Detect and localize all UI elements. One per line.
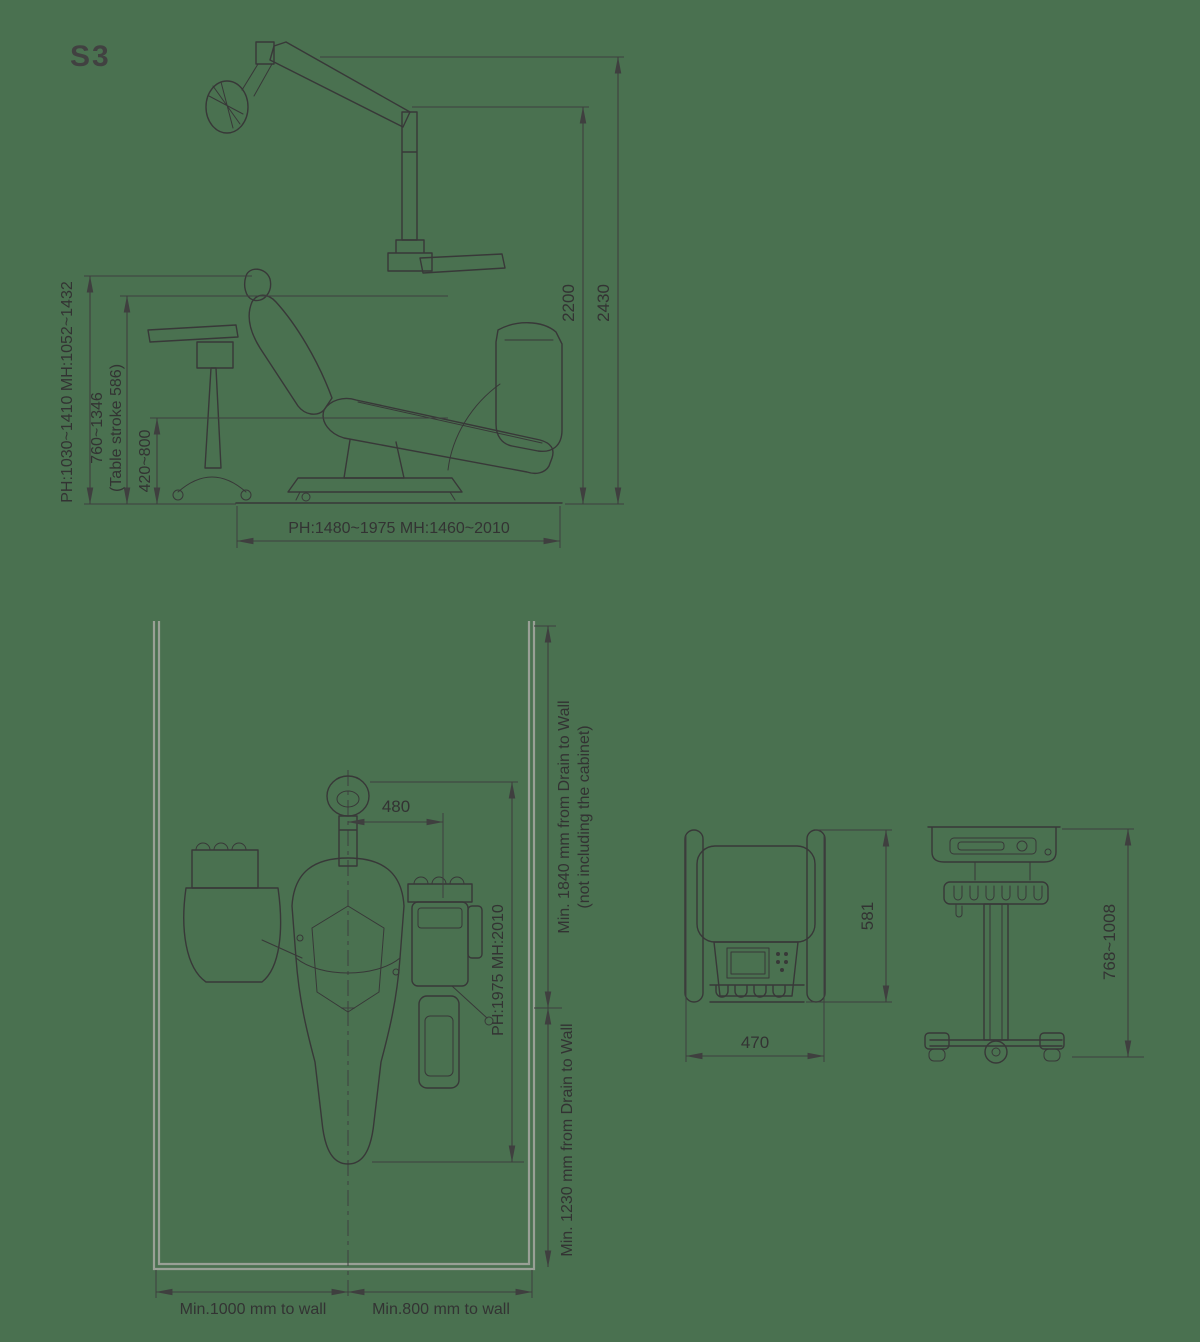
dim-label-height-inner: 2200 <box>559 284 578 322</box>
front-view-dimensions: 581 470 <box>686 830 892 1062</box>
instrument-holder-bar <box>944 882 1048 904</box>
assistant-tray-scallops <box>196 843 246 850</box>
assistant-body <box>184 888 281 982</box>
delivery-unit-plan <box>408 877 493 1088</box>
dim-label-wall-left: Min.1000 mm to wall <box>180 1301 327 1318</box>
dim-label-headrest-offset: 480 <box>382 797 410 816</box>
cart-view: 768~1008 <box>925 827 1144 1063</box>
chair-base <box>288 478 462 492</box>
delivery-body <box>412 902 468 986</box>
seat-legrest-side <box>323 398 553 473</box>
plan-view-dimensions: 480 PH:1975 MH:2010 Min. 1840 mm from Dr… <box>156 626 593 1318</box>
dim-label-cart-height: 768~1008 <box>1100 904 1119 980</box>
base-skid <box>296 492 455 500</box>
light-link <box>242 64 272 96</box>
foot-control <box>302 493 310 501</box>
control-screen <box>731 952 765 974</box>
instrument-slots <box>954 886 1042 900</box>
assistant-tray <box>192 850 258 888</box>
legrest-edge <box>358 402 542 443</box>
chair-side-profile <box>245 269 553 501</box>
delivery-arm <box>452 986 487 1018</box>
cart-caster-left-wheel <box>929 1049 945 1061</box>
extension-lines <box>686 830 892 1062</box>
dim-label-wall-right: Min.800 mm to wall <box>372 1301 510 1318</box>
light-arm <box>270 42 410 127</box>
dim-label-stool-height: 581 <box>858 902 877 930</box>
armrest-right <box>807 830 825 1002</box>
cart-tray-knob <box>1045 849 1051 855</box>
delivery-panel <box>418 908 462 928</box>
extension-lines <box>84 57 624 548</box>
dim-label-chair-reach: PH:1975 MH:2010 <box>490 904 507 1036</box>
backrest-front <box>697 846 815 942</box>
lift-column <box>344 440 404 478</box>
cart-tray-knob <box>1017 841 1027 851</box>
dim-label-bottom-width: PH:1480~1975 MH:1460~2010 <box>288 520 510 537</box>
dim-label-height-outer: 2430 <box>594 284 613 322</box>
backrest-side <box>249 295 332 414</box>
light-head <box>206 81 248 133</box>
light-pole <box>402 112 417 240</box>
cart-neck <box>975 862 1030 880</box>
technical-drawing-page: S3 <box>0 0 1200 1342</box>
page-title: S3 <box>70 40 111 73</box>
side-left-unit <box>148 325 251 500</box>
side-unit-body <box>448 323 562 470</box>
left-unit-tray <box>148 325 238 342</box>
dim-label-left-outer: PH:1030~1410 MH:1052~1432 <box>59 281 76 503</box>
dim-label-drain-top-1: Min. 1840 mm from Drain to Wall <box>556 700 573 933</box>
cart-tray <box>928 827 1060 862</box>
dim-label-left-mid-2: (Table stroke 586) <box>108 364 125 492</box>
dimension-drawing: S3 <box>0 0 1200 1342</box>
room-wall-inner <box>159 621 529 1264</box>
dim-label-left-inner: 420~800 <box>137 430 154 493</box>
cart-center-wheel <box>985 1041 1007 1063</box>
dental-light-assembly <box>206 42 505 273</box>
delivery-tray-scallops <box>414 877 464 884</box>
cart-tray-inner <box>950 838 1036 854</box>
hanging-hook <box>956 904 962 917</box>
left-unit-legs <box>178 477 246 492</box>
cart-center-wheel-hub <box>992 1048 1000 1056</box>
pivot-point <box>297 935 303 941</box>
side-elevation-view: PH:1030~1410 MH:1052~1432 760~1346 (Tabl… <box>59 42 624 548</box>
room-wall-outer <box>154 621 534 1269</box>
dim-label-stool-width: 470 <box>741 1033 769 1052</box>
cart-view-dimensions: 768~1008 <box>1062 829 1144 1057</box>
side-view-dimensions: PH:1030~1410 MH:1052~1432 760~1346 (Tabl… <box>59 57 624 548</box>
base-casters-front <box>710 985 804 1002</box>
plan-view: 480 PH:1975 MH:2010 Min. 1840 mm from Dr… <box>154 621 593 1318</box>
drain-cross-mark <box>341 1001 355 1015</box>
cart-tray-slot <box>958 842 1004 850</box>
delivery-tray-top <box>408 884 472 902</box>
left-unit-box <box>197 342 233 368</box>
chair-front-view: 581 470 <box>685 830 892 1062</box>
cart-caster-right-wheel <box>1044 1049 1060 1061</box>
cart-column-telescope <box>990 904 1002 1040</box>
delivery-side-tab <box>468 906 482 958</box>
armrest-left <box>685 830 703 1002</box>
control-buttons <box>776 952 788 972</box>
light-head-segments <box>209 82 243 128</box>
lower-tray-inner <box>425 1016 453 1076</box>
instrument-tray-side <box>420 254 505 273</box>
pole-collar <box>388 240 432 271</box>
dim-label-left-mid-1: 760~1346 <box>89 392 106 464</box>
cart-column <box>984 904 1008 1040</box>
dim-label-drain-top-2: (not including the cabinet) <box>576 725 593 908</box>
dim-label-drain-bottom: Min. 1230 mm from Drain to Wall <box>559 1023 576 1256</box>
assistant-unit-plan <box>184 843 302 982</box>
